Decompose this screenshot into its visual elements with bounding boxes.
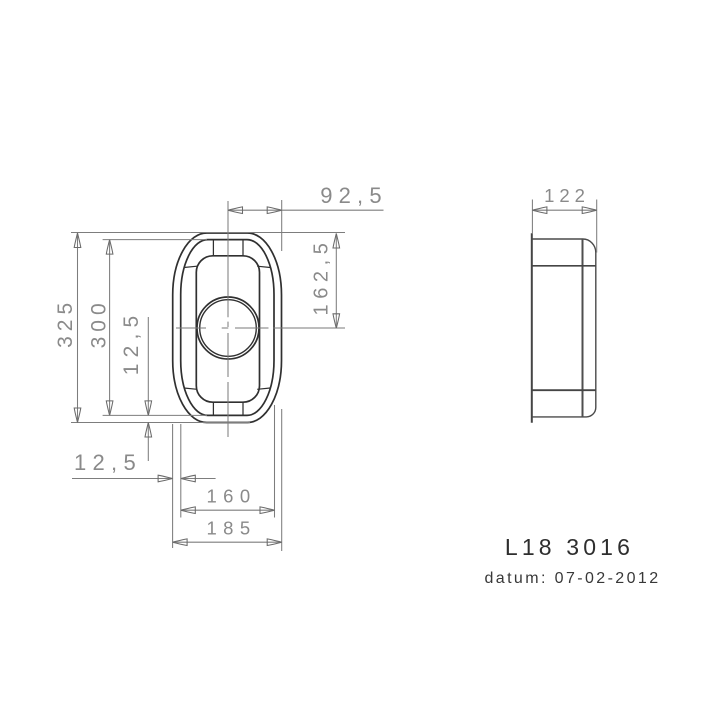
- svg-text:325: 325: [54, 298, 77, 348]
- svg-text:12,5: 12,5: [74, 450, 142, 475]
- svg-text:datum: 07-02-2012: datum: 07-02-2012: [484, 570, 660, 587]
- svg-text:L18 3016: L18 3016: [505, 534, 634, 560]
- svg-text:185: 185: [206, 518, 256, 539]
- svg-text:162,5: 162,5: [311, 237, 333, 315]
- svg-text:12,5: 12,5: [120, 310, 143, 376]
- svg-text:300: 300: [88, 298, 111, 348]
- svg-text:92,5: 92,5: [320, 183, 388, 208]
- svg-text:122: 122: [544, 185, 590, 206]
- svg-text:160: 160: [206, 485, 256, 506]
